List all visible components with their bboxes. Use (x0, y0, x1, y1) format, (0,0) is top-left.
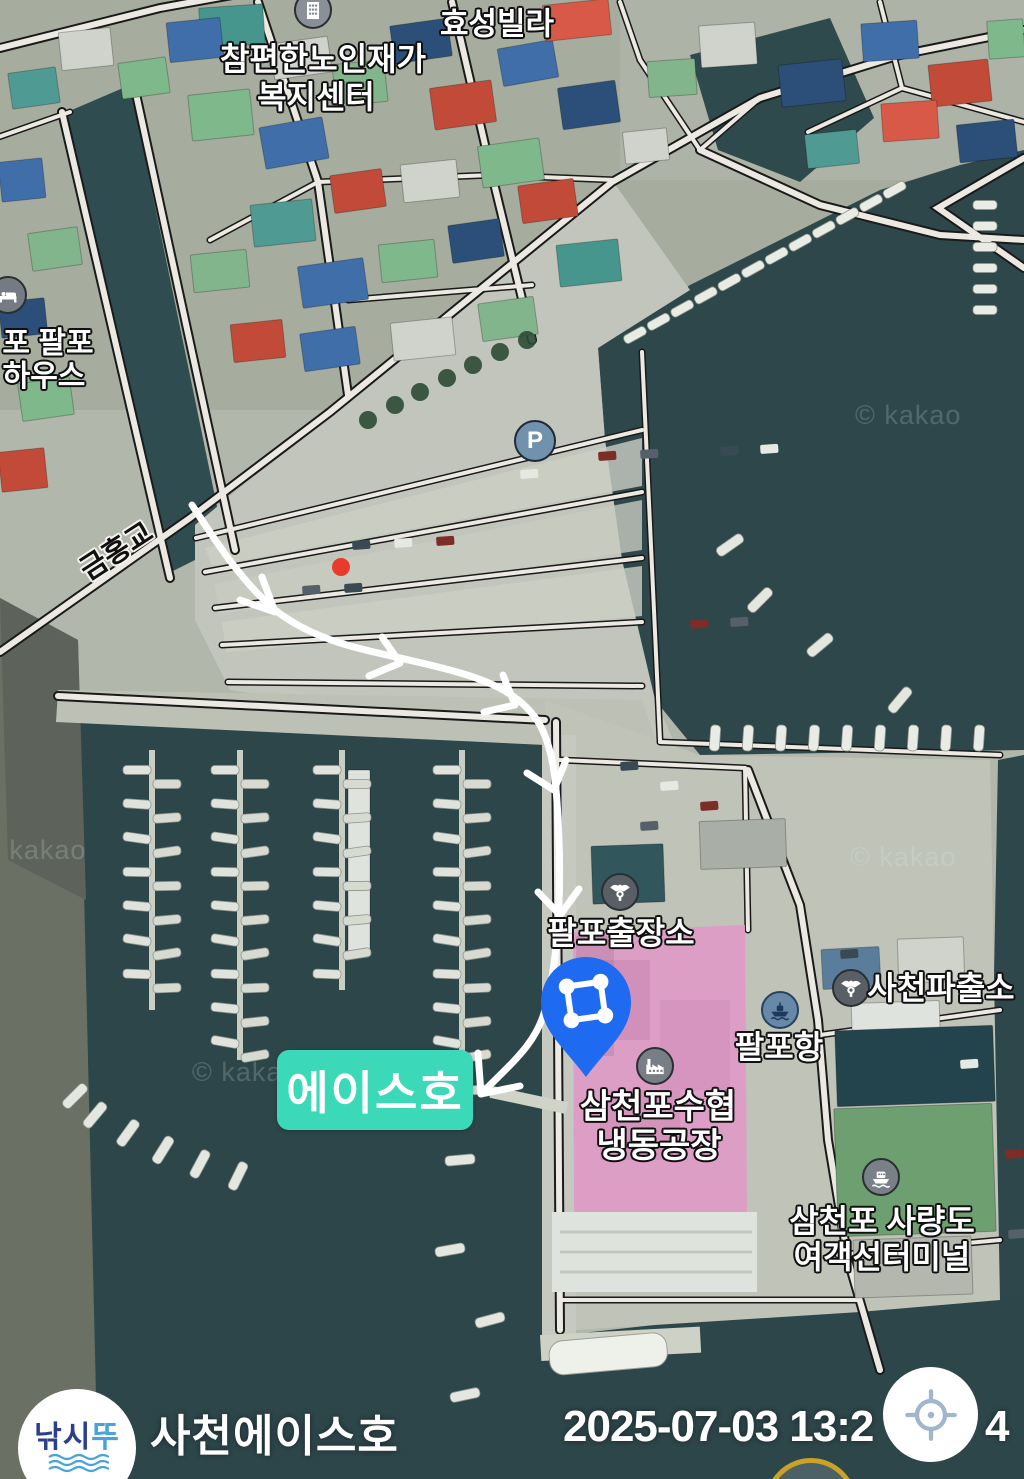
destination-label-text: 에이스호 (286, 1057, 463, 1123)
parking-poi-icon[interactable]: P (514, 420, 556, 462)
label-hyoseong-villa: 효성빌라 (440, 9, 554, 40)
label-ferry-terminal-line2: 여객선터미널 (794, 1241, 971, 1273)
crosshair-icon (903, 1387, 959, 1443)
overlay-title: 사천에이스호 (150, 1400, 399, 1464)
label-palpo-port: 팔포항 (735, 1031, 823, 1063)
app-logo-text: 낚시뚜 (34, 1423, 120, 1453)
locate-button[interactable] (883, 1367, 978, 1462)
label-fisheries-line1: 삼천포수협 (580, 1090, 736, 1124)
red-dot-marker (332, 558, 350, 576)
label-palpo-branch-office: 팔포출장소 (547, 917, 694, 949)
waves-icon (45, 1453, 109, 1473)
police-badge-icon[interactable] (601, 873, 639, 911)
ferry-poi-icon[interactable] (862, 1158, 900, 1196)
label-ferry-terminal-line1: 삼천포 사량도 (789, 1205, 975, 1237)
destination-label[interactable]: 에이스호 (277, 1050, 473, 1130)
police-badge-icon[interactable] (832, 969, 870, 1007)
overlay-timestamp: 2025-07-03 13:2 (563, 1402, 873, 1452)
label-welfare-center-line2: 복지센터 (257, 81, 375, 113)
map-screenshot: © kakao © kakao © kakao © kakao P (0, 0, 1024, 1479)
factory-poi-icon[interactable] (636, 1047, 674, 1085)
overlay-timestamp-end: 4 (985, 1402, 1009, 1452)
label-guesthouse-line1: 포 팔포 (2, 329, 93, 359)
location-pin[interactable] (531, 955, 641, 1085)
label-welfare-center-line1: 참편한노인재가 (220, 43, 426, 75)
parking-letter: P (527, 427, 543, 455)
label-fisheries-line2: 냉동공장 (596, 1129, 721, 1163)
label-sacheon-police: 사천파출소 (867, 972, 1014, 1004)
label-guesthouse-line2: 하우스 (3, 362, 86, 392)
ship-poi-icon[interactable] (761, 991, 799, 1029)
